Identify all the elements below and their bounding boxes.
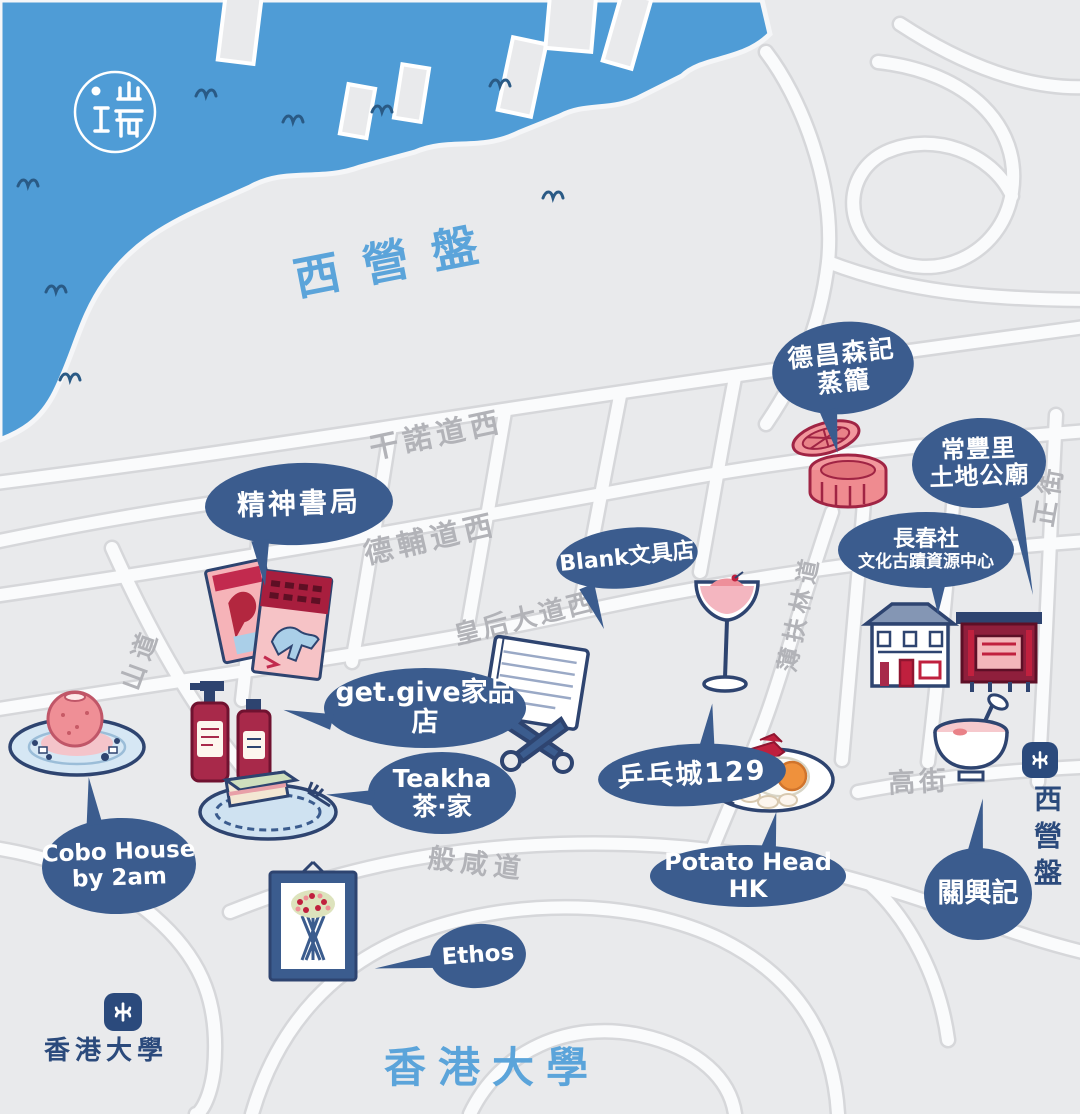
cake-plate-illustration [196,748,346,848]
soup-bowl-illustration [926,690,1021,790]
place-label: 蒸籠 [816,365,873,398]
place-bubble-potato-head[interactable]: Potato Head HK [650,845,846,907]
bottom-area-title: 香港大學 [384,1034,600,1095]
temple-illustration [950,596,1050,696]
steamer-illustration [786,412,898,514]
place-label: 常豐里 [941,435,1017,464]
heritage-house-illustration [858,590,963,695]
place-bubble-cache[interactable]: 長春社 文化古蹟資源中心 [838,512,1014,588]
place-label: 茶·家 [412,793,472,821]
brand-logo-icon [71,68,159,156]
mtr-station-label-syp: 西營盤 [1026,784,1066,895]
mtr-station-label-hku: 香港大學 [44,1030,168,1067]
place-label: 文化古蹟資源中心 [858,553,994,572]
cocktail-illustration [688,568,766,703]
mtr-logo-icon [1028,748,1052,772]
place-label: Potato Head HK [650,849,846,903]
place-label: 乒乓城129 [617,756,768,794]
mtr-station-icon-syp[interactable] [1022,742,1058,778]
place-label: Blank文具店 [558,539,695,578]
place-label: 關興記 [938,879,1019,909]
mtr-station-icon-hku[interactable] [104,993,142,1031]
place-label: 土地公廟 [929,461,1030,491]
place-label: Ethos [441,941,515,972]
place-label: 精神書局 [236,486,361,522]
dessert-plate-illustration [5,685,160,790]
place-bubble-kwan-hing-kee[interactable]: 關興記 [924,848,1032,940]
place-label: Teakha [393,765,492,793]
illustrated-map-canvas: 西營盤 香港大學 干諾道西 德輔道西 皇后大道西 般咸道 山道 薄扶林道 高街 … [0,0,1080,1114]
mtr-logo-icon [110,999,136,1025]
place-bubble-teakha[interactable]: Teakha 茶·家 [368,752,516,834]
place-label: 長春社 [893,528,959,553]
place-label: get.give家品店 [324,678,526,738]
place-bubble-getgive[interactable]: get.give家品店 [324,668,526,748]
place-label: by 2am [72,864,168,893]
framed-flowers-illustration [262,856,364,988]
water [0,0,770,440]
